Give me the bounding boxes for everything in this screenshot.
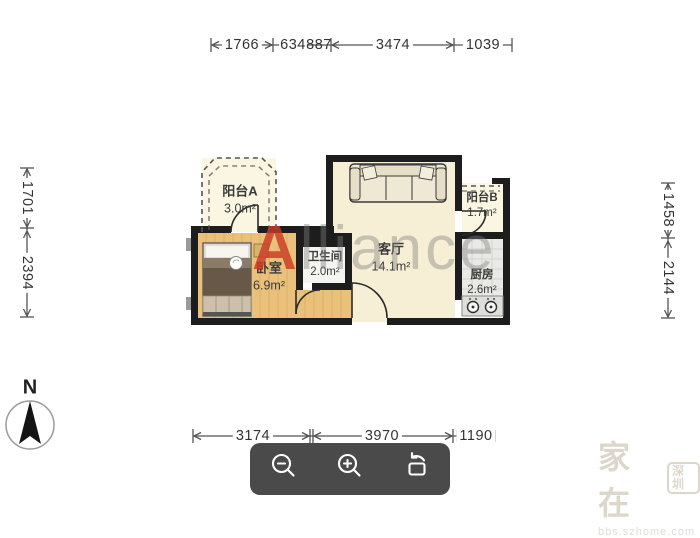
floorplan-svg <box>0 0 700 486</box>
room-area: 14.1m² <box>372 258 411 274</box>
room-name: 客厅 <box>372 241 411 258</box>
dim-bottom-1190: 1190 <box>456 428 495 444</box>
dim-top-634: 634 <box>279 37 307 53</box>
dim-top-1766: 1766 <box>222 37 262 53</box>
room-label-bathroom: 卫生间 2.0m² <box>308 250 343 280</box>
room-name: 阳台A <box>222 183 257 200</box>
site-watermark-url: bbs.szhome.com <box>598 526 700 538</box>
room-area: 2.0m² <box>308 265 343 280</box>
room-label-bedroom: 卧室 6.9m² <box>253 260 285 293</box>
sofa <box>350 164 446 202</box>
dim-top-887: 887 <box>305 37 333 53</box>
zoom-in-button[interactable] <box>328 449 372 485</box>
dim-right-1458: 1458 <box>660 190 676 230</box>
room-label-balcony-a: 阳台A 3.0m² <box>222 183 257 216</box>
dim-right-2144: 2144 <box>660 258 676 298</box>
dim-left-2394: 2394 <box>19 253 35 293</box>
dim-top-3474: 3474 <box>373 37 413 53</box>
room-name: 厨房 <box>467 268 496 283</box>
rotate-screen-icon <box>403 452 430 482</box>
stove <box>462 296 503 316</box>
window-marks <box>186 238 191 310</box>
room-name: 阳台B <box>466 191 497 206</box>
dim-top-1039: 1039 <box>463 37 503 53</box>
room-name: 卧室 <box>253 260 285 277</box>
viewer-toolbar <box>250 443 450 495</box>
room-area: 3.0m² <box>222 200 257 216</box>
room-label-living: 客厅 14.1m² <box>372 241 411 274</box>
dim-bottom-3970: 3970 <box>362 428 402 444</box>
room-label-kitchen: 厨房 2.6m² <box>467 268 496 298</box>
room-name: 卫生间 <box>308 250 343 265</box>
floorplan-viewer: 1766 634 887 3474 1039 3174 3970 1190 17… <box>0 0 700 486</box>
room-label-balcony-b: 阳台B 1.7m² <box>466 191 497 221</box>
zoom-out-button[interactable] <box>261 449 305 485</box>
dim-bottom-3174: 3174 <box>233 428 273 444</box>
room-area: 6.9m² <box>253 277 285 293</box>
north-compass <box>6 401 54 449</box>
room-area: 1.7m² <box>466 206 497 221</box>
zoom-in-icon <box>336 452 363 482</box>
compass-north-label: N <box>23 377 37 400</box>
dim-left-1701: 1701 <box>19 178 35 218</box>
zoom-out-icon <box>270 452 297 482</box>
room-area: 2.6m² <box>467 283 496 298</box>
rotate-button[interactable] <box>395 449 439 485</box>
